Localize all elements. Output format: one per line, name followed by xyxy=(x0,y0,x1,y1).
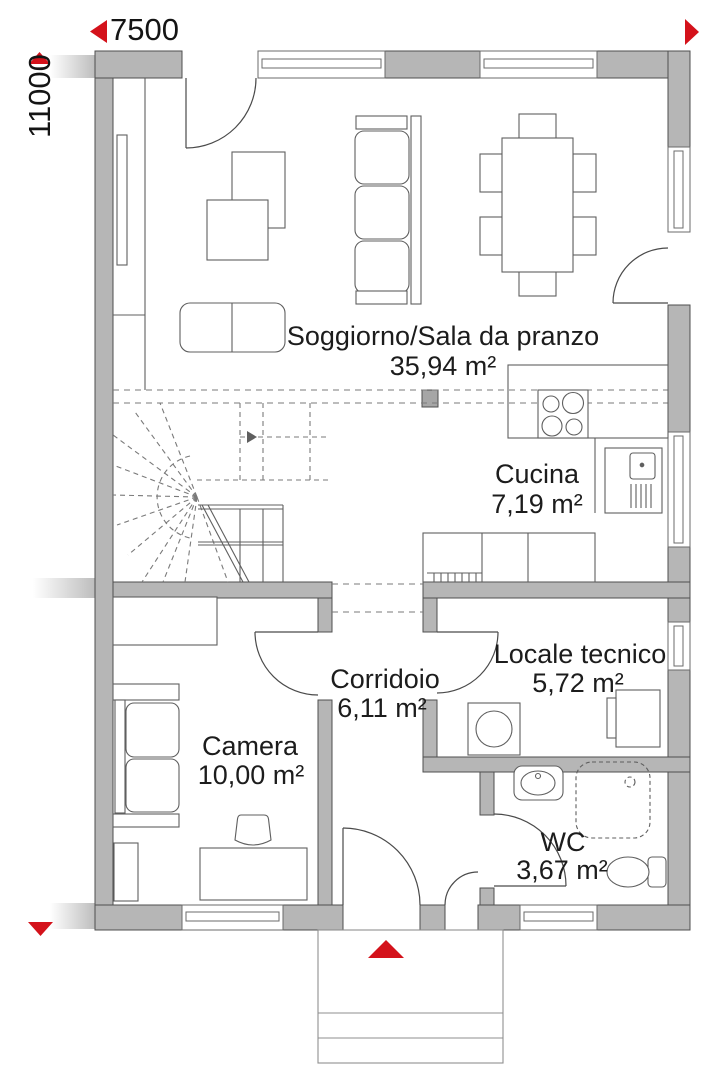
window-right-cucina xyxy=(668,432,690,547)
window-right-living xyxy=(668,147,690,232)
window-bottom-wc xyxy=(520,905,597,930)
wall-stairs-camera xyxy=(113,582,332,598)
dining-table-set xyxy=(480,114,596,296)
staircase xyxy=(113,403,330,582)
furniture-tecnico xyxy=(468,690,660,755)
wall-bottom-5 xyxy=(597,905,690,930)
bench xyxy=(180,303,285,352)
room-area-corridoio: 6,11 m² xyxy=(337,693,427,723)
wall-cucina-corridoio xyxy=(423,582,690,598)
window-top-1 xyxy=(258,51,385,78)
wall-right-1 xyxy=(668,51,690,147)
wall-bottom-3 xyxy=(420,905,445,930)
coffee-table-2 xyxy=(207,200,268,260)
wall-right-2 xyxy=(668,305,690,432)
wall-closet xyxy=(113,78,145,390)
wall-bottom-2 xyxy=(283,905,343,930)
wall-camera-stub xyxy=(318,598,332,632)
window-bottom-camera xyxy=(182,905,283,930)
room-area-camera: 10,00 m² xyxy=(198,760,305,790)
dimension-arrow-right-icon xyxy=(685,19,699,45)
wall-wc-stub xyxy=(480,772,494,815)
dimension-width-label: 7500 xyxy=(110,12,179,47)
chair xyxy=(519,271,556,296)
wall-top-1 xyxy=(95,51,182,78)
room-label-cucina: Cucina xyxy=(495,459,580,489)
sofa xyxy=(355,116,421,304)
stove xyxy=(538,390,588,438)
room-label-corridoio: Corridoio xyxy=(330,664,440,694)
wall-bottom-1 xyxy=(95,905,182,930)
kitchen-counter-bottom xyxy=(423,533,595,582)
room-label-wc: WC xyxy=(541,827,586,857)
sink xyxy=(514,766,563,800)
entrance-arrow-icon xyxy=(368,940,404,958)
room-label-locale-tecnico: Locale tecnico xyxy=(494,639,667,669)
desk xyxy=(200,848,307,900)
toilet xyxy=(607,857,666,887)
wardrobe xyxy=(113,597,217,645)
floor-plan: 7500 11000 Soggiorno/Sala da pranzo 35,9… xyxy=(0,0,725,1080)
door-living-top xyxy=(186,78,256,148)
reference-gradient-bands xyxy=(33,55,95,929)
cabinet xyxy=(114,843,138,901)
wall-tecnico-stub xyxy=(423,598,437,632)
door-locale-tecnico xyxy=(437,632,498,693)
chair xyxy=(573,154,596,192)
shower xyxy=(576,762,650,838)
room-area-locale-tecnico: 5,72 m² xyxy=(532,668,624,698)
room-label-soggiorno: Soggiorno/Sala da pranzo xyxy=(287,321,599,351)
window-right-tecnico xyxy=(668,622,690,670)
room-area-soggiorno: 35,94 m² xyxy=(390,351,497,381)
stairs-direction-arrow-icon xyxy=(247,431,257,443)
door-living-right xyxy=(613,248,668,303)
wall-bottom-4 xyxy=(478,905,520,930)
wall-camera-corridoio xyxy=(318,700,332,905)
dimension-height-label: 11000 xyxy=(22,54,57,138)
room-area-wc: 3,67 m² xyxy=(516,855,608,885)
chair xyxy=(573,217,596,255)
desk-chair xyxy=(235,815,271,845)
boiler-unit xyxy=(607,690,660,747)
kitchen-sink-unit xyxy=(605,448,662,513)
stairs-lower-flight xyxy=(198,505,283,582)
room-label-camera: Camera xyxy=(202,731,299,761)
wall-right-4 xyxy=(668,670,690,930)
porch-steps xyxy=(318,930,503,1063)
door-camera xyxy=(255,632,318,695)
dining-table xyxy=(502,138,573,272)
column-cucina xyxy=(422,390,438,407)
washing-machine xyxy=(468,703,520,755)
window-top-2 xyxy=(480,51,597,78)
door-entrance xyxy=(343,828,420,905)
chair xyxy=(480,217,503,255)
bed xyxy=(113,684,179,827)
wall-top-2 xyxy=(385,51,480,78)
chair xyxy=(480,154,503,192)
stairs-upper-flight-dashed xyxy=(113,403,330,582)
chair xyxy=(519,114,556,139)
door-side-small xyxy=(445,872,478,905)
wall-wc-pier xyxy=(480,888,494,905)
wall-left xyxy=(95,51,113,930)
dimension-arrow-left-icon xyxy=(90,20,107,43)
dimension-arrow-down-icon xyxy=(28,922,53,936)
room-area-cucina: 7,19 m² xyxy=(491,489,583,519)
